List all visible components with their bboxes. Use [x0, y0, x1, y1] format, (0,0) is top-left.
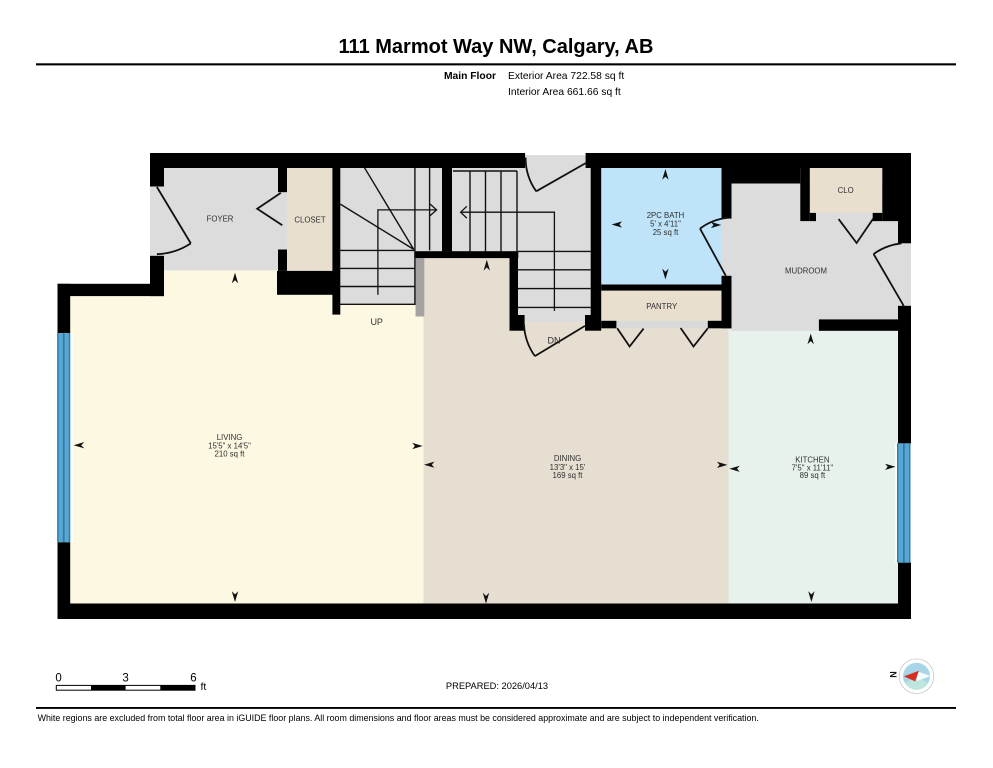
svg-text:White regions are excluded fro: White regions are excluded from total fl… — [38, 713, 759, 723]
svg-text:25 sq ft: 25 sq ft — [653, 228, 679, 237]
svg-text:89 sq ft: 89 sq ft — [800, 471, 826, 480]
svg-text:CLOSET: CLOSET — [294, 216, 325, 225]
svg-text:PANTRY: PANTRY — [646, 302, 678, 311]
svg-text:FOYER: FOYER — [207, 215, 234, 224]
svg-text:Interior Area 661.66 sq ft: Interior Area 661.66 sq ft — [508, 87, 621, 98]
svg-text:210 sq ft: 210 sq ft — [215, 450, 246, 459]
svg-text:PREPARED: 2026/04/13: PREPARED: 2026/04/13 — [446, 681, 548, 691]
svg-text:6: 6 — [190, 673, 196, 685]
svg-text:MUDROOM: MUDROOM — [785, 267, 827, 276]
svg-text:ft: ft — [201, 681, 207, 693]
svg-text:111 Marmot Way NW, Calgary, AB: 111 Marmot Way NW, Calgary, AB — [339, 36, 654, 58]
svg-text:Exterior Area 722.58 sq ft: Exterior Area 722.58 sq ft — [508, 71, 624, 82]
svg-text:UP: UP — [370, 317, 383, 327]
svg-text:0: 0 — [55, 673, 61, 685]
svg-text:DN: DN — [548, 335, 561, 345]
svg-text:Main Floor: Main Floor — [444, 71, 496, 82]
svg-text:N: N — [889, 671, 899, 678]
svg-text:3: 3 — [122, 673, 128, 685]
svg-text:DINING: DINING — [554, 454, 581, 463]
svg-text:169 sq ft: 169 sq ft — [553, 471, 584, 480]
svg-text:CLO: CLO — [838, 186, 854, 195]
